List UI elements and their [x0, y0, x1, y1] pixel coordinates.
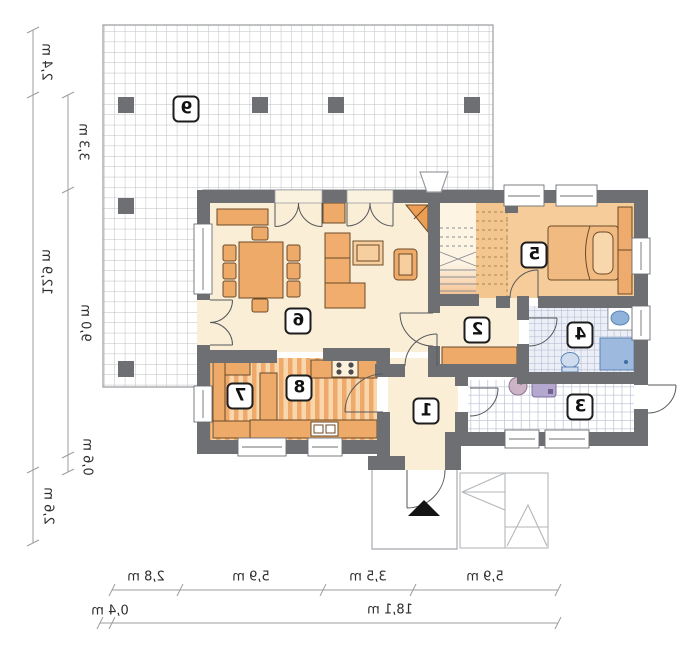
porch-and-roof-outline	[372, 470, 548, 549]
terrace-door-opening	[197, 300, 210, 345]
window	[238, 438, 286, 456]
floor-plan-drawing	[0, 0, 700, 661]
window	[556, 185, 597, 206]
chair-icon	[223, 263, 236, 279]
dim-line-left-outer	[27, 27, 39, 546]
stairs	[440, 203, 508, 306]
bench-icon	[442, 347, 517, 365]
terrace-post	[118, 198, 134, 214]
chair-icon	[223, 245, 236, 261]
terrace-door-opening	[347, 190, 393, 203]
door-swing	[648, 385, 676, 413]
window	[545, 430, 589, 448]
floor-plan-image: 9 6 5 2 4 3 1 7 8 2,4 m 12,9 m 2,6 m 3,3…	[0, 0, 700, 661]
dim-line-left-inner	[62, 92, 74, 475]
terrace-post	[328, 97, 344, 113]
bed-icon	[548, 226, 618, 280]
terrace-post	[464, 97, 480, 113]
washbasin-icon	[608, 306, 634, 330]
terrace-post	[252, 97, 268, 113]
window	[194, 224, 212, 294]
shower-icon	[600, 338, 634, 370]
terrace-door-opening	[275, 190, 322, 203]
window	[194, 386, 212, 422]
chair-icon	[223, 281, 236, 297]
window	[308, 438, 342, 456]
dim-line-bottom-segments	[109, 584, 561, 596]
chair-icon	[287, 281, 300, 297]
window	[632, 306, 650, 340]
terrace-post	[118, 97, 134, 113]
chair-icon	[287, 263, 300, 279]
kitchen-sink-icon	[311, 422, 338, 436]
terrace-post	[118, 361, 134, 377]
window	[632, 238, 650, 274]
sideboard-icon	[217, 209, 268, 225]
cabinet-icon	[323, 203, 345, 223]
window	[505, 430, 539, 448]
chair-icon	[252, 299, 268, 312]
toilet-icon	[561, 353, 579, 373]
roof-outline	[460, 473, 548, 548]
chair-icon	[252, 227, 268, 240]
window	[504, 185, 544, 206]
stove-icon	[332, 360, 358, 377]
dim-line-bottom-total	[97, 617, 561, 629]
chair-icon	[287, 245, 300, 261]
